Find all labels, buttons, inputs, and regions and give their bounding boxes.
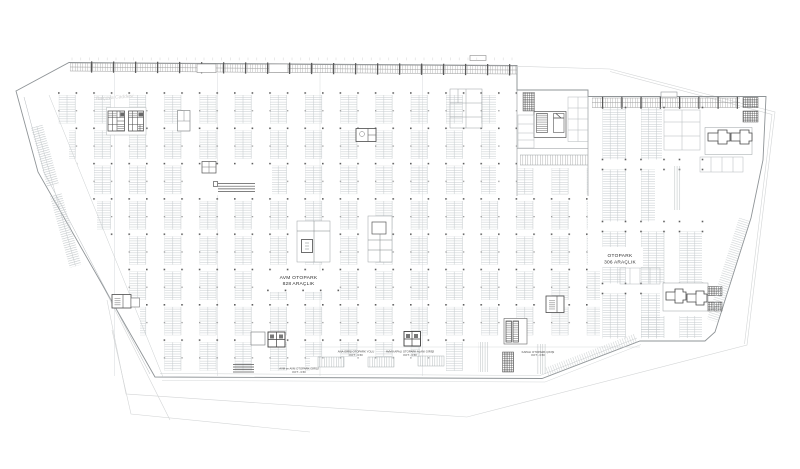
svg-text:OTOPARK: OTOPARK xyxy=(607,253,633,259)
svg-text:KOT: -3.50: KOT: -3.50 xyxy=(349,353,363,357)
svg-text:AVM OTOPARK: AVM OTOPARK xyxy=(280,275,318,281)
svg-text:KOT: -3.50: KOT: -3.50 xyxy=(531,353,545,357)
svg-text:KOT: -3.50: KOT: -3.50 xyxy=(292,370,306,374)
svg-text:306 ARAÇLIK: 306 ARAÇLIK xyxy=(604,260,636,266)
svg-text:KOT: -3.50: KOT: -3.50 xyxy=(403,353,417,357)
svg-text:828 ARAÇLIK: 828 ARAÇLIK xyxy=(283,281,315,287)
